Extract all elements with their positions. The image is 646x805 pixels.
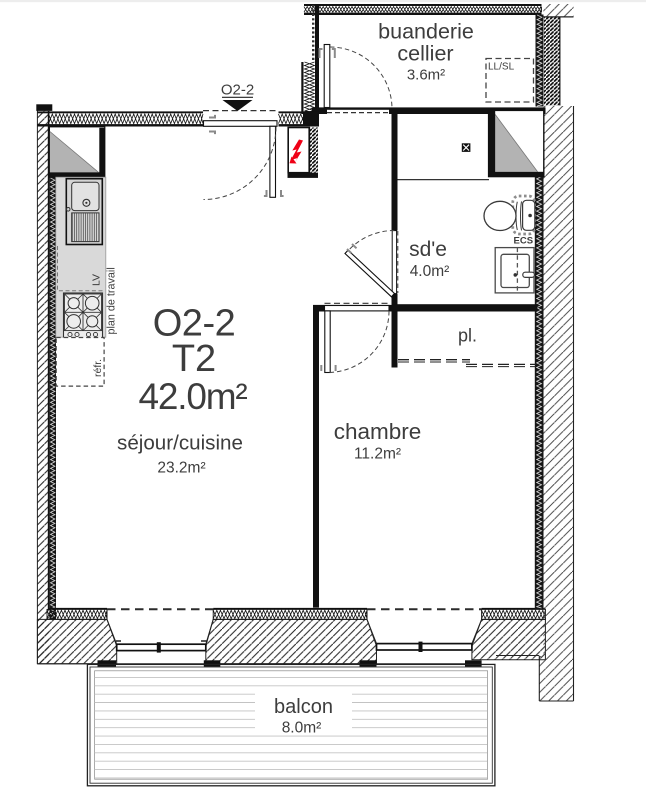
svg-text:réfr.: réfr.: [92, 359, 104, 377]
svg-text:séjour/cuisine: séjour/cuisine: [117, 432, 243, 455]
svg-text:chambre: chambre: [334, 419, 422, 444]
svg-text:LL/SL: LL/SL: [488, 62, 515, 73]
svg-text:23.2m²: 23.2m²: [157, 460, 205, 477]
svg-text:cellier: cellier: [397, 42, 453, 66]
svg-text:LV: LV: [91, 274, 103, 286]
svg-text:8.0m²: 8.0m²: [282, 720, 322, 737]
svg-text:O2-2: O2-2: [221, 82, 254, 99]
svg-text:3.6m²: 3.6m²: [407, 67, 445, 84]
svg-text:buanderie: buanderie: [378, 20, 474, 44]
svg-text:T2: T2: [172, 338, 216, 380]
svg-text:balcon: balcon: [274, 696, 333, 718]
svg-text:ECS: ECS: [514, 236, 534, 247]
svg-text:11.2m²: 11.2m²: [354, 446, 401, 463]
svg-text:sd'e: sd'e: [409, 238, 447, 261]
svg-text:4.0m²: 4.0m²: [410, 263, 450, 280]
svg-text:plan de travail: plan de travail: [106, 267, 118, 334]
svg-text:42.0m²: 42.0m²: [139, 376, 248, 417]
svg-text:pl.: pl.: [458, 326, 477, 346]
